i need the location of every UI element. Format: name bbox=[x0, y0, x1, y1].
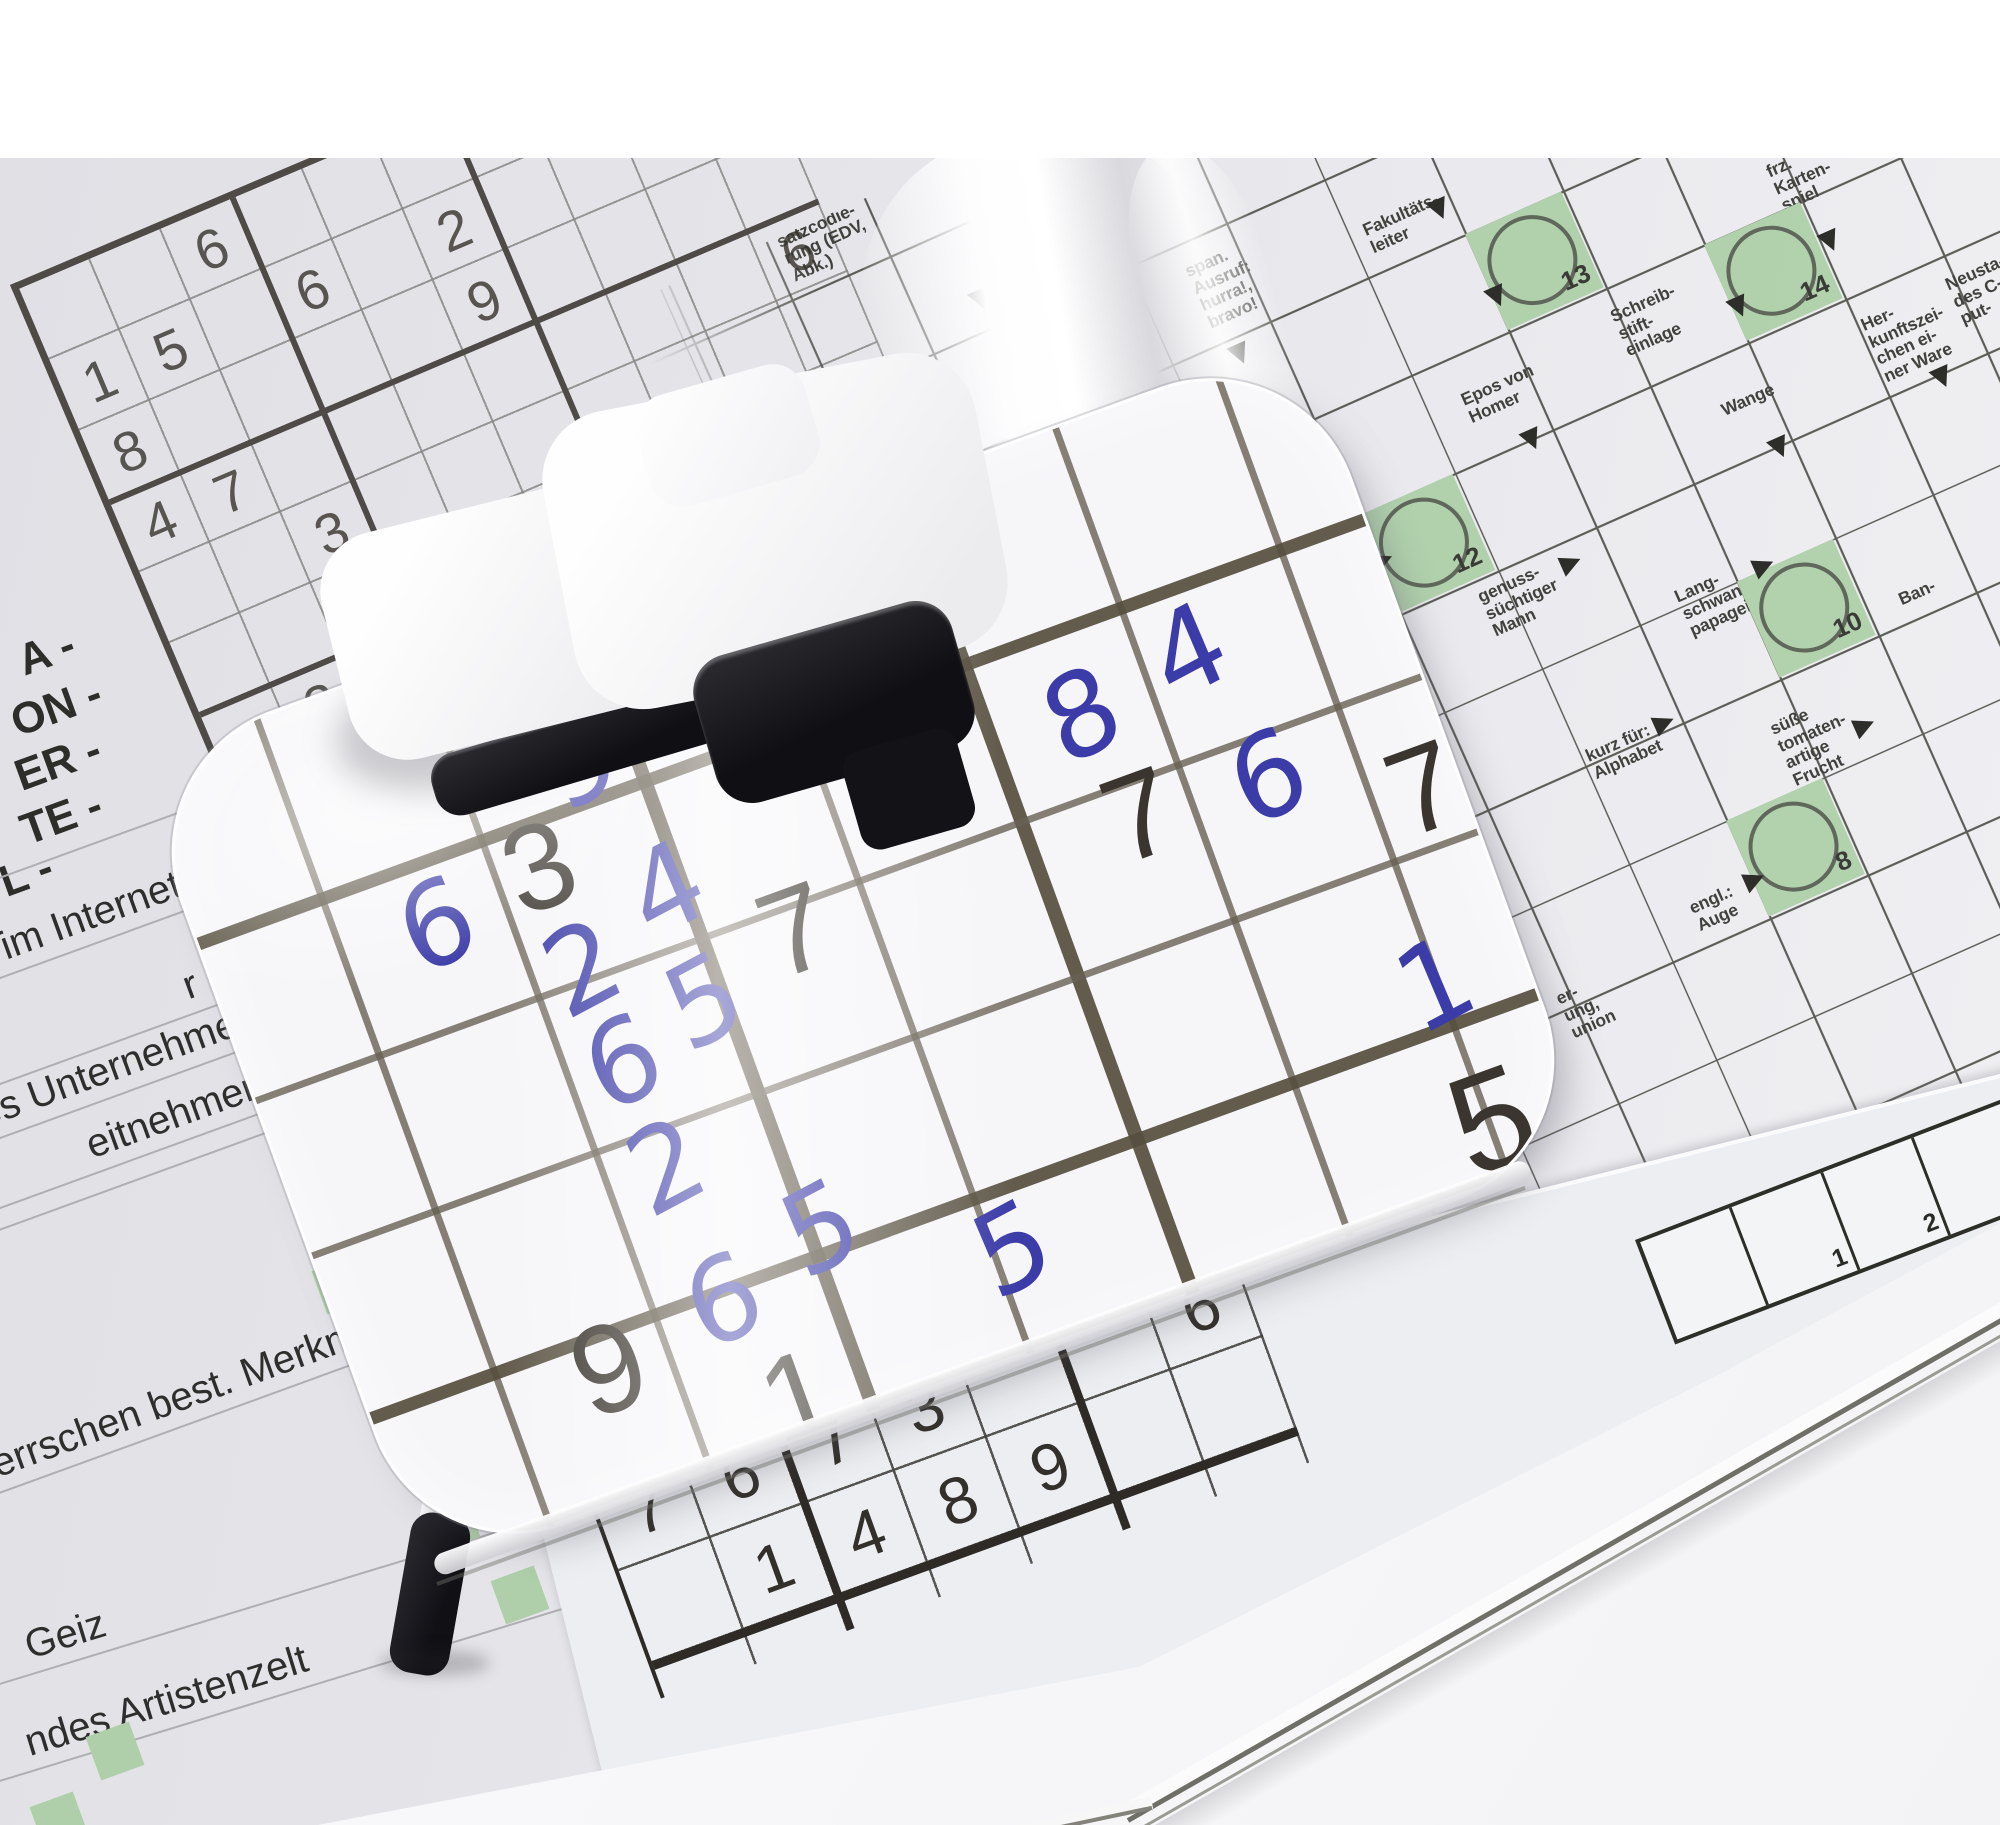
lens-hand-digit: 6 bbox=[379, 846, 495, 1003]
lens-hand-digit: 6 bbox=[1210, 698, 1326, 855]
lens-printed-digit: 7 bbox=[739, 852, 851, 1007]
answer-number: 1 bbox=[1828, 1242, 1851, 1274]
checkbox-square bbox=[491, 1566, 550, 1625]
leg-foot-shadow bbox=[380, 1650, 490, 1676]
lens-printed-digit: 7 bbox=[1084, 738, 1196, 893]
lens-hand-digit: 5 bbox=[762, 1149, 878, 1306]
checkbox-square bbox=[30, 1792, 89, 1825]
lens-hand-digit: 2 bbox=[608, 1088, 724, 1245]
booklet-spread: 671562894763689299 Zeichen- satzcodie- r… bbox=[0, 158, 2000, 1825]
lens-printed-digit: 9 bbox=[551, 1288, 666, 1448]
photo-top-margin bbox=[0, 0, 2000, 158]
checkbox-square bbox=[86, 1722, 145, 1781]
lens-hand-digit: 4 bbox=[1130, 573, 1246, 730]
lens-hand-digit: 5 bbox=[646, 923, 762, 1080]
answer-number: 2 bbox=[1919, 1207, 1942, 1239]
lens-hand-digit: 5 bbox=[954, 1170, 1070, 1327]
photo-scene: 671562894763689299 Zeichen- satzcodie- r… bbox=[0, 0, 2000, 1825]
